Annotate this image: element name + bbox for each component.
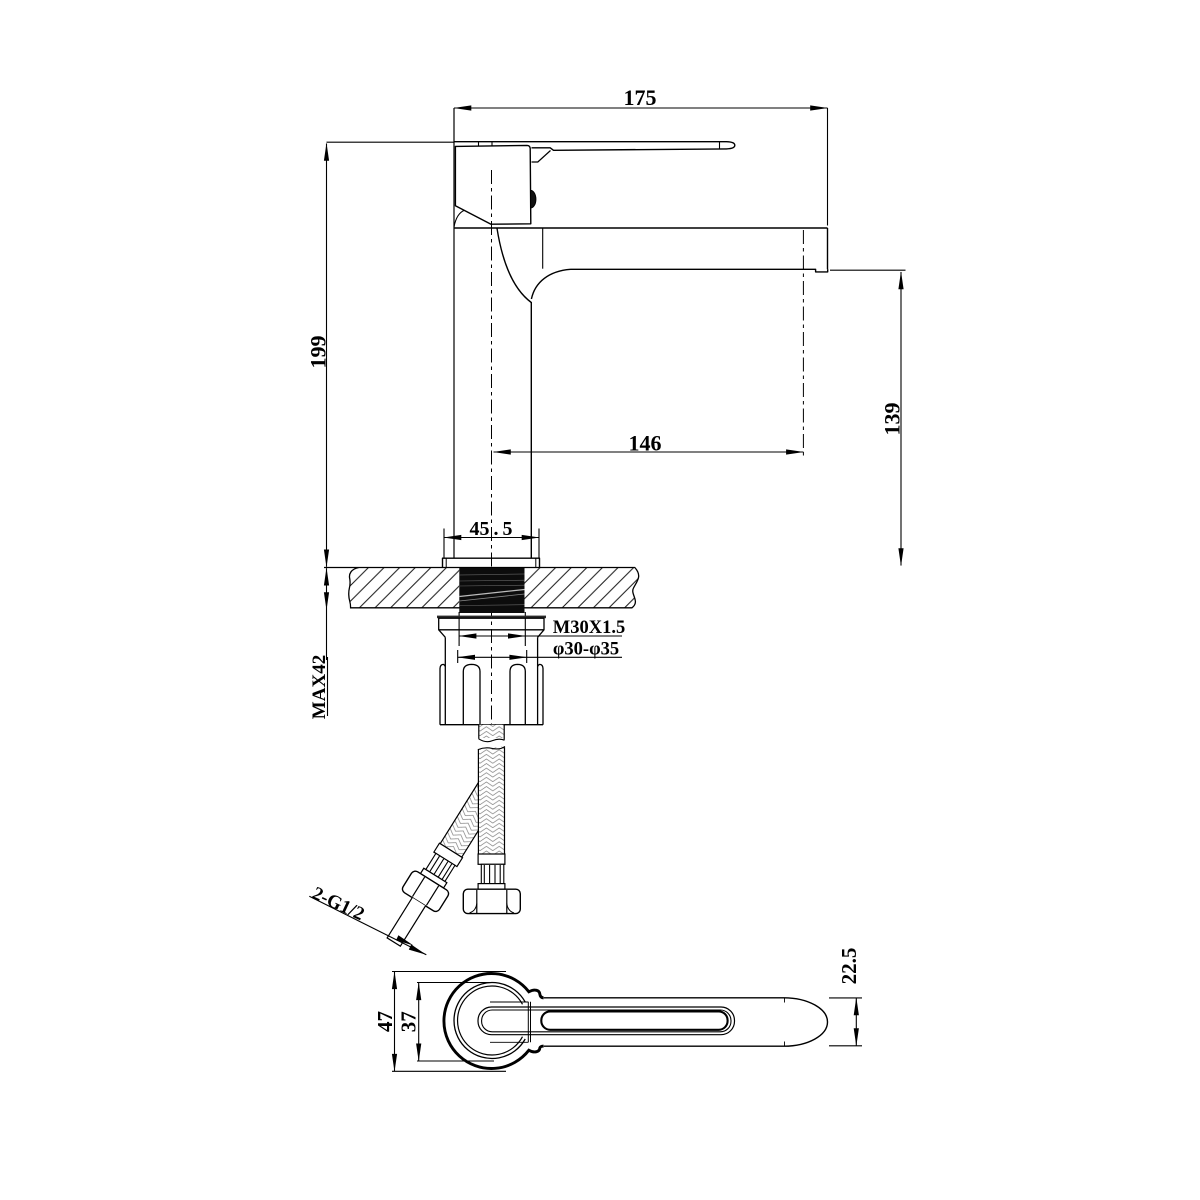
svg-text:199: 199: [306, 336, 331, 369]
svg-text:146: 146: [629, 431, 662, 456]
svg-text:45 . 5: 45 . 5: [469, 518, 512, 540]
svg-text:MAX42: MAX42: [309, 655, 330, 719]
svg-text:139: 139: [880, 403, 905, 436]
svg-text:φ30-φ35: φ30-φ35: [553, 640, 619, 660]
svg-text:37: 37: [396, 1011, 420, 1032]
svg-text:47: 47: [373, 1011, 397, 1032]
svg-text:22.5: 22.5: [837, 948, 861, 985]
svg-text:M30X1.5: M30X1.5: [553, 618, 625, 638]
svg-text:175: 175: [624, 85, 657, 110]
